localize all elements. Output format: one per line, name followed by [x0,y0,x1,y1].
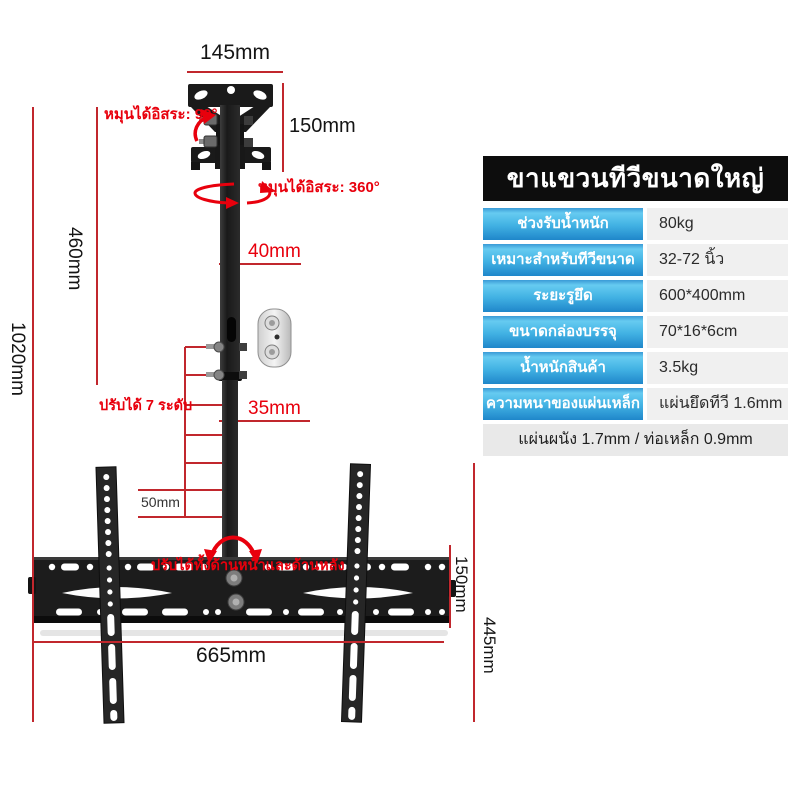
dim-top-plate-width: 145mm [186,42,284,64]
dim-upper-section-height: 460mm [64,227,84,290]
tv-mount-product-infographic: 145mm 150mm หมุนได้อิสระ: 90° หมุนได้อิส… [0,0,800,800]
dim-bracket-height: 150mm [452,556,470,613]
tilt-note-label: ปรับได้ทั้งด้านหน้าและด้านหลัง [151,559,345,574]
spec-row-value: 80kg [647,208,788,240]
adjust-levels-label: ปรับได้ 7 ระดับ [99,399,192,414]
chrome-connector [258,309,291,367]
adjust-screw [214,370,224,380]
spec-row: ขนาดกล่องบรรจุ 70*16*6cm [483,316,788,348]
dim-bracket-width: 665mm [186,645,276,667]
telescoping-pole [206,105,247,560]
dim-level-step: 50mm [141,495,180,510]
dim-top-plate-height: 150mm [289,116,356,137]
rotate-360-label: หมุนได้อิสระ: 360° [258,180,380,196]
spec-row-label: เหมาะสำหรับทีวีขนาด [483,244,643,276]
plate-hole [227,86,235,94]
spec-table-rows: ช่วงรับน้ำหนัก 80kg เหมาะสำหรับทีวีขนาด … [483,208,788,420]
adjust-screw [214,342,224,352]
bolt [204,136,217,147]
bolt [244,138,253,147]
dim-lower-section-height: 445mm [480,617,498,674]
dim-total-height: 1020mm [7,322,27,396]
spec-table: ขาแขวนทีวีขนาดใหญ่ ช่วงรับน้ำหนัก 80kg เ… [483,156,788,456]
spec-row-label: ระยะรูยึด [483,280,643,312]
spec-row-label: ขนาดกล่องบรรจุ [483,316,643,348]
spec-table-footer: แผ่นผนัง 1.7mm / ท่อเหล็ก 0.9mm [483,424,788,456]
spec-row-label: น้ำหนักสินค้า [483,352,643,384]
spec-row-value: 70*16*6cm [647,316,788,348]
spec-row: น้ำหนักสินค้า 3.5kg [483,352,788,384]
spec-row: ช่วงรับน้ำหนัก 80kg [483,208,788,240]
right-rail [342,464,371,723]
dim-upper-tube: 40mm [248,242,301,262]
spec-row-label: ช่วงรับน้ำหนัก [483,208,643,240]
spec-row: ความหนาของแผ่นเหล็ก แผ่นยึดทีวี 1.6mm [483,388,788,420]
dimension-lines [33,72,474,722]
spec-table-title: ขาแขวนทีวีขนาดใหญ่ [483,156,788,201]
spec-row-value: 600*400mm [647,280,788,312]
spec-row-value: 32-72 นิ้ว [647,244,788,276]
spec-row: ระยะรูยึด 600*400mm [483,280,788,312]
dim-lower-tube: 35mm [248,399,301,419]
rotate-90-label: หมุนได้อิสระ: 90° [104,107,217,123]
bolt [244,116,253,125]
spec-row-value: แผ่นยึดทีวี 1.6mm [647,388,788,420]
left-rail [96,467,124,724]
spec-row-value: 3.5kg [647,352,788,384]
spec-row-label: ความหนาของแผ่นเหล็ก [483,388,643,420]
pole-slot [227,317,236,342]
spec-row: เหมาะสำหรับทีวีขนาด 32-72 นิ้ว [483,244,788,276]
